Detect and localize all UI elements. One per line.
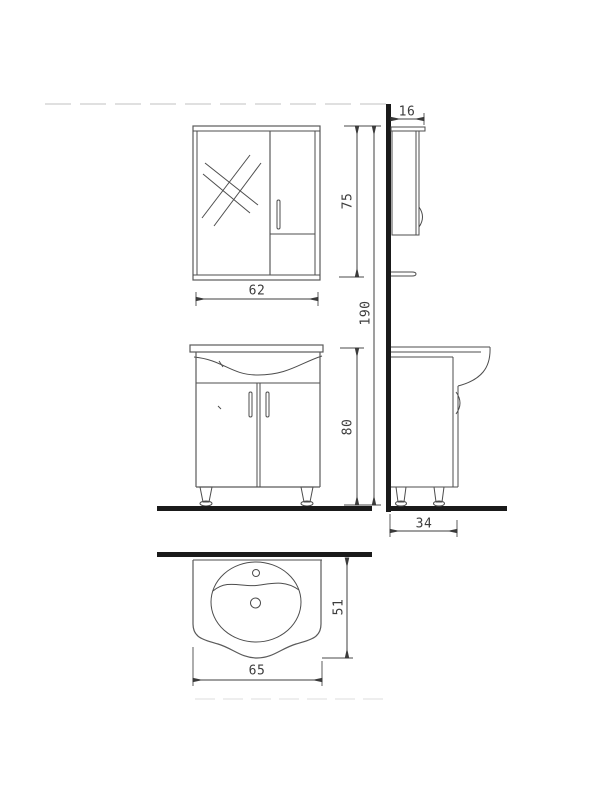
washbasin-top-view (193, 560, 322, 658)
left-door-handle-icon (249, 392, 252, 417)
floor-line-front (157, 506, 372, 511)
mirror-cabinet-side-view (391, 127, 425, 276)
vanity-front-view (190, 345, 323, 506)
wall-line-top-view (157, 552, 372, 557)
vanity-side-view (391, 347, 490, 506)
basin-bowl (211, 562, 301, 642)
dim-label-mirror-depth: 16 (399, 106, 416, 119)
drawing-svg (0, 0, 600, 800)
dim-label-mirror-width: 62 (249, 285, 266, 298)
basin-apron-curve (194, 356, 322, 375)
technical-drawing-canvas: 62 75 16 190 80 34 65 51 (0, 0, 600, 800)
mirror-door-handle-icon (277, 200, 280, 229)
tap-hole-icon (253, 570, 260, 577)
basin-rim-front (190, 345, 323, 352)
dim-label-vanity-depth: 34 (416, 518, 433, 531)
dim-label-total-height: 190 (360, 301, 373, 326)
basin-side-profile (458, 347, 490, 386)
wall-shelf (391, 272, 416, 276)
mirror-glass-hatch-icon (202, 155, 261, 226)
dim-label-basin-depth: 51 (333, 599, 346, 616)
floor-line-side (388, 506, 507, 511)
mirror-cabinet-front-view (193, 126, 320, 280)
basin-outline (193, 560, 321, 658)
basin-ledge-curve (213, 583, 299, 591)
dim-label-basin-width: 65 (249, 665, 266, 678)
vanity-side-legs (396, 487, 445, 506)
dim-label-mirror-height: 75 (342, 193, 355, 210)
wall-line (386, 104, 391, 512)
right-door-handle-icon (266, 392, 269, 417)
vanity-front-legs (200, 487, 313, 506)
drain-hole-icon (251, 598, 261, 608)
side-handle-icon (419, 207, 423, 227)
dim-label-vanity-height: 80 (342, 419, 355, 436)
